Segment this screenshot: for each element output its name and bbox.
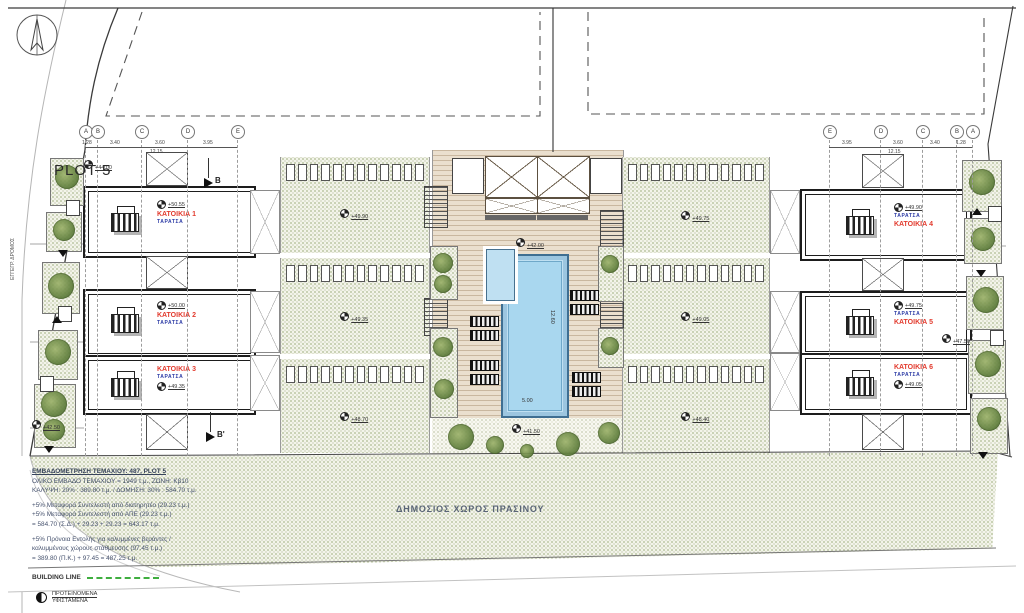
entrance-arrow-icon bbox=[52, 316, 62, 323]
sun-lounger bbox=[572, 386, 601, 397]
level-marker: +50.55 bbox=[168, 202, 185, 208]
roof-label: ΤΑΡΑΤΣΑ bbox=[894, 372, 933, 380]
utility-box bbox=[990, 330, 1004, 346]
grid-line bbox=[880, 140, 881, 456]
level-marker: +42.00 bbox=[527, 243, 544, 249]
pool-water bbox=[508, 261, 562, 411]
dimension-label: 1.28 bbox=[82, 140, 92, 146]
note-line: ΕΜΒΑΔΟΜΕΤΡΗΣΗ ΤΕΜΑΧΙΟΥ: 487, PLOT 5 bbox=[32, 467, 242, 477]
dimension-label: 3.60 bbox=[893, 140, 903, 146]
entry-planter bbox=[962, 160, 1002, 212]
house-katoikia-2: +50.00 ΚΑΤΟΙΚΙΑ 2 ΤΑΡΑΤΣΑ bbox=[83, 289, 256, 359]
utility-box bbox=[988, 206, 1002, 222]
level-marker: +50.00 bbox=[168, 303, 185, 309]
house-name: ΚΑΤΟΙΚΙΑ 3 bbox=[157, 365, 196, 374]
house-katoikia-1: +50.55 ΚΑΤΟΙΚΙΑ 1 ΤΑΡΑΤΣΑ bbox=[83, 186, 256, 258]
level-marker: +49.35 bbox=[168, 384, 185, 390]
entry-planter bbox=[970, 398, 1008, 454]
stairs bbox=[424, 186, 448, 228]
note-line: ΚΑΛΥΨΗ: 20% : 389.80 τ.μ. / ΔΟΜΗΣΗ: 30% … bbox=[32, 486, 242, 496]
sun-lounger bbox=[570, 304, 599, 315]
note-line: = 584.70 (Σ.Δ.) + 29.23 + 29.23 = 643.17… bbox=[32, 520, 242, 530]
level-icon bbox=[942, 334, 951, 343]
sun-lounger bbox=[570, 290, 599, 301]
section-flag-icon bbox=[206, 432, 215, 442]
grid-bubble: B bbox=[950, 125, 964, 139]
pergola bbox=[537, 156, 590, 198]
level-icon bbox=[894, 203, 903, 212]
stairs-icon bbox=[846, 209, 882, 235]
dimension-line bbox=[829, 147, 972, 148]
planter bbox=[598, 328, 624, 368]
dimension-label: 3.60 bbox=[155, 140, 165, 146]
skylight bbox=[862, 258, 904, 291]
level-icon bbox=[894, 380, 903, 389]
level-marker: +41.50 bbox=[523, 429, 540, 435]
house-name: ΚΑΤΟΙΚΙΑ 1 bbox=[157, 210, 196, 219]
building-line-legend: BUILDING LINE bbox=[32, 574, 159, 581]
sun-lounger bbox=[470, 330, 499, 341]
house-name: ΚΑΤΟΙΚΙΑ 5 bbox=[894, 318, 933, 327]
note-line: ΟΛΙΚΟ ΕΜΒΑΔΟ ΤΕΜΑΧΙΟΥ = 1949 τ.μ., ΖΩΝΗ:… bbox=[32, 477, 242, 487]
utility-box bbox=[452, 158, 484, 194]
tree-icon bbox=[448, 424, 474, 450]
neighbor-outline bbox=[106, 12, 540, 116]
note-line: καλυμμένους χώρους στάθμευσης (97.45 τ.μ… bbox=[32, 544, 242, 554]
dimension-label: 3.40 bbox=[930, 140, 940, 146]
note-line: +5% Μεταφορά Συντελεστή από διατηρητέο (… bbox=[32, 501, 242, 511]
note-line: +5% Πρόνοια Εντολής για καλυμμένες βεράν… bbox=[32, 535, 242, 545]
building-line-symbol bbox=[87, 577, 159, 579]
planter bbox=[430, 328, 458, 418]
sun-lounger bbox=[470, 360, 499, 371]
level-icon bbox=[32, 420, 41, 429]
level-marker: +49.75 bbox=[905, 303, 922, 309]
skylight bbox=[146, 256, 188, 289]
grid-bubble: D bbox=[181, 125, 195, 139]
pergola-beam bbox=[485, 215, 536, 220]
entry-planter bbox=[968, 340, 1006, 394]
tree-icon bbox=[520, 444, 534, 458]
section-flag-icon bbox=[204, 178, 213, 188]
tree-icon bbox=[486, 436, 504, 454]
sun-lounger bbox=[470, 316, 499, 327]
level-marker: +49.05 bbox=[905, 382, 922, 388]
planter bbox=[430, 246, 458, 300]
grid-bubble: E bbox=[823, 125, 837, 139]
grid-line bbox=[187, 140, 188, 456]
stairs-icon bbox=[846, 370, 882, 396]
dimension-label: 3.95 bbox=[203, 140, 213, 146]
note-line: = 389.80 (Π.Κ.) + 97.45 = 487.25 τ.μ. bbox=[32, 554, 242, 564]
pool-length-label: 12.60 bbox=[549, 310, 555, 324]
grid-line bbox=[956, 140, 957, 456]
north-compass-icon bbox=[14, 12, 60, 58]
site-plan: +49.90 +49.35 +48.70 +49.75 +49.05 +48.4… bbox=[0, 0, 1024, 613]
neighbor-outline bbox=[588, 12, 984, 114]
grid-bubble: C bbox=[916, 125, 930, 139]
utility-box bbox=[66, 200, 80, 216]
roof-label: ΤΑΡΑΤΣΑ bbox=[894, 311, 933, 319]
grid-line bbox=[237, 140, 238, 456]
planter bbox=[598, 246, 624, 302]
grid-bubble: C bbox=[135, 125, 149, 139]
grid-bubble: D bbox=[874, 125, 888, 139]
sun-lounger bbox=[572, 372, 601, 383]
tree-icon bbox=[598, 422, 620, 444]
level-icon bbox=[894, 301, 903, 310]
skylight bbox=[146, 152, 188, 186]
stairs-icon bbox=[846, 309, 882, 335]
skylight bbox=[770, 190, 800, 254]
level-icon bbox=[157, 301, 166, 310]
entrance-arrow-icon bbox=[972, 208, 982, 215]
level-icon bbox=[157, 382, 166, 391]
tree-icon bbox=[556, 432, 580, 456]
dimension-label: 12.15 bbox=[150, 149, 163, 155]
level-marker: +47.50 bbox=[953, 339, 970, 345]
dimension-label: 3.95 bbox=[842, 140, 852, 146]
legend-proposed-existing: ΠΡΟΤΕΙΝΟΜΕΝΑ ΥΦΙΣΤΑΜΕΝΑ bbox=[36, 591, 97, 604]
house-katoikia-4: +49.90 ΤΑΡΑΤΣΑ ΚΑΤΟΙΚΙΑ 4 bbox=[800, 189, 972, 261]
plot-label: PLOT 5 bbox=[54, 162, 111, 179]
sun-lounger bbox=[470, 374, 499, 385]
pool-width-label: 5.00 bbox=[522, 398, 533, 404]
level-icon bbox=[157, 200, 166, 209]
grid-line bbox=[922, 140, 923, 456]
grid-line bbox=[141, 140, 142, 456]
dimension-label: 3.40 bbox=[110, 140, 120, 146]
entry-planter bbox=[46, 212, 82, 252]
pergola bbox=[485, 156, 538, 198]
skylight bbox=[250, 355, 280, 411]
grid-bubble: A bbox=[966, 125, 980, 139]
skylight bbox=[770, 353, 800, 411]
dimension-line bbox=[85, 147, 237, 148]
roof-label: ΤΑΡΑΤΣΑ bbox=[894, 213, 933, 221]
utility-box bbox=[40, 376, 54, 392]
level-marker: +49.90 bbox=[905, 205, 922, 211]
skylight bbox=[250, 190, 280, 254]
skylight bbox=[250, 291, 280, 353]
pergola bbox=[537, 198, 590, 214]
road-label: ΕΓΓΕΓΡ. ΔΡΟΜΟΣ bbox=[10, 238, 16, 280]
entrance-arrow-icon bbox=[44, 446, 54, 453]
skylight bbox=[770, 291, 800, 353]
entrance-arrow-icon bbox=[976, 270, 986, 277]
kids-pool bbox=[486, 249, 515, 301]
grid-line bbox=[972, 140, 973, 456]
notes-block: ΕΜΒΑΔΟΜΕΤΡΗΣΗ ΤΕΜΑΧΙΟΥ: 487, PLOT 5 ΟΛΙΚ… bbox=[32, 467, 242, 563]
roof-label: ΤΑΡΑΤΣΑ bbox=[157, 320, 196, 328]
skylight bbox=[862, 154, 904, 188]
roof-label: ΤΑΡΑΤΣΑ bbox=[157, 374, 196, 382]
level-icon bbox=[516, 238, 525, 247]
house-katoikia-6: ΚΑΤΟΙΚΙΑ 6 ΤΑΡΑΤΣΑ +49.05 bbox=[800, 353, 972, 415]
house-name: ΚΑΤΟΙΚΙΑ 2 bbox=[157, 311, 196, 320]
utility-box bbox=[590, 158, 622, 194]
entry-planter bbox=[964, 218, 1002, 264]
entry-planter bbox=[38, 330, 78, 380]
grid-bubble: B bbox=[91, 125, 105, 139]
level-marker: +42.50 bbox=[43, 425, 60, 431]
grid-line bbox=[97, 140, 98, 456]
grid-line bbox=[829, 140, 830, 456]
house-katoikia-3: ΚΑΤΟΙΚΙΑ 3 ΤΑΡΑΤΣΑ +49.35 bbox=[83, 355, 256, 415]
grid-bubble: E bbox=[231, 125, 245, 139]
note-line: +5% Μεταφορά Συντελεστή από ΑΠΕ (29.23 τ… bbox=[32, 510, 242, 520]
house-name: ΚΑΤΟΙΚΙΑ 4 bbox=[894, 220, 933, 229]
house-name: ΚΑΤΟΙΚΙΑ 6 bbox=[894, 363, 933, 372]
pergola-beam bbox=[537, 215, 588, 220]
grid-line bbox=[85, 140, 86, 456]
entrance-arrow-icon bbox=[58, 250, 68, 257]
legend-existing-label: ΥΦΙΣΤΑΜΕΝΑ bbox=[52, 597, 97, 604]
dimension-label: 12.15 bbox=[888, 149, 901, 155]
skylight bbox=[146, 414, 188, 450]
proposed-existing-icon bbox=[36, 592, 47, 603]
skylight bbox=[862, 414, 904, 450]
public-green-label: ΔΗΜΟΣΙΟΣ ΧΩΡΟΣ ΠΡΑΣΙΝΟΥ bbox=[396, 504, 544, 514]
roof-label: ΤΑΡΑΤΣΑ bbox=[157, 219, 196, 227]
level-icon bbox=[512, 424, 521, 433]
building-line-label: BUILDING LINE bbox=[32, 574, 81, 581]
pergola bbox=[485, 198, 538, 214]
dimension-label: 1.28 bbox=[956, 140, 966, 146]
entrance-arrow-icon bbox=[978, 452, 988, 459]
